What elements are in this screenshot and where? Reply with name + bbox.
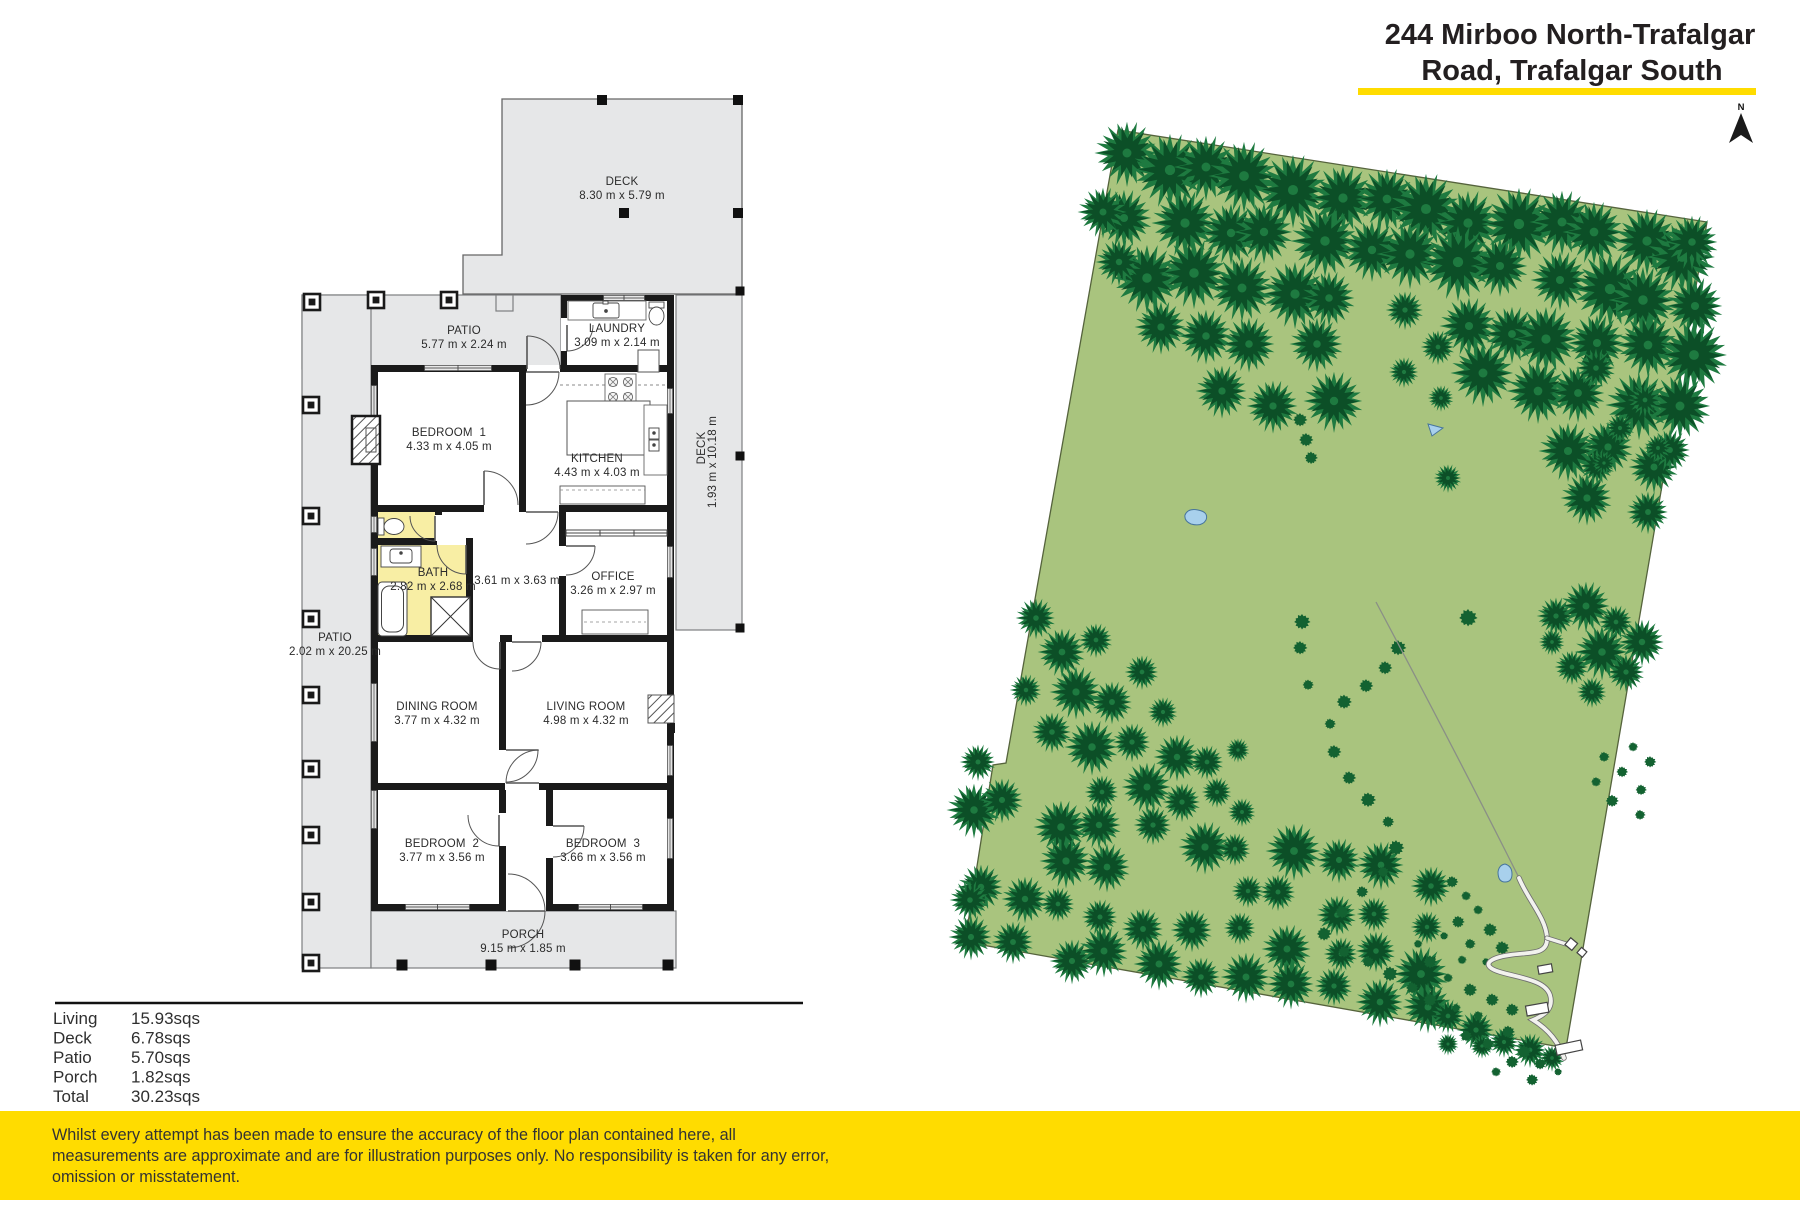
- svg-text:1.93 m x 10.18 m: 1.93 m x 10.18 m: [707, 416, 719, 508]
- svg-text:measurements are approximate a: measurements are approximate and are for…: [52, 1147, 829, 1165]
- svg-text:Deck: Deck: [53, 1029, 92, 1048]
- svg-text:3.09 m x 2.14 m: 3.09 m x 2.14 m: [574, 337, 659, 349]
- svg-text:1.82sqs: 1.82sqs: [131, 1068, 191, 1087]
- svg-text:DINING ROOM: DINING ROOM: [396, 701, 477, 713]
- svg-text:8.30 m x 5.79 m: 8.30 m x 5.79 m: [579, 190, 664, 202]
- svg-text:4.33 m x 4.05 m: 4.33 m x 4.05 m: [406, 441, 491, 453]
- svg-text:3.61 m x 3.63 m: 3.61 m x 3.63 m: [474, 575, 559, 587]
- svg-text:LIVING ROOM: LIVING ROOM: [547, 701, 626, 713]
- svg-text:PATIO: PATIO: [318, 632, 352, 644]
- svg-text:Total: Total: [53, 1087, 89, 1106]
- svg-text:Patio: Patio: [53, 1048, 92, 1067]
- svg-text:4.43 m x 4.03 m: 4.43 m x 4.03 m: [554, 467, 639, 479]
- svg-text:5.77 m x 2.24 m: 5.77 m x 2.24 m: [421, 339, 506, 351]
- svg-text:BEDROOM 1: BEDROOM 1: [412, 427, 486, 439]
- svg-text:30.23sqs: 30.23sqs: [131, 1087, 200, 1106]
- svg-text:Porch: Porch: [53, 1068, 97, 1087]
- svg-text:6.78sqs: 6.78sqs: [131, 1029, 191, 1048]
- svg-text:244 Mirboo North-Trafalgar: 244 Mirboo North-Trafalgar: [1385, 19, 1756, 51]
- svg-text:LAUNDRY: LAUNDRY: [589, 323, 645, 335]
- svg-text:4.98 m x 4.32 m: 4.98 m x 4.32 m: [543, 715, 628, 727]
- svg-text:15.93sqs: 15.93sqs: [131, 1009, 200, 1028]
- svg-text:Whilst every attempt has been: Whilst every attempt has been made to en…: [52, 1126, 736, 1144]
- svg-text:3.77 m x 3.56 m: 3.77 m x 3.56 m: [399, 852, 484, 864]
- svg-text:5.70sqs: 5.70sqs: [131, 1048, 191, 1067]
- svg-text:BATH: BATH: [418, 567, 449, 579]
- svg-text:OFFICE: OFFICE: [591, 571, 634, 583]
- svg-text:N: N: [1738, 102, 1745, 113]
- svg-text:2.02 m x 20.25 m: 2.02 m x 20.25 m: [289, 646, 381, 658]
- svg-text:PORCH: PORCH: [502, 929, 545, 941]
- svg-text:PATIO: PATIO: [447, 325, 481, 337]
- svg-text:BEDROOM 3: BEDROOM 3: [566, 838, 640, 850]
- svg-text:3.66 m x 3.56 m: 3.66 m x 3.56 m: [560, 852, 645, 864]
- svg-text:omission or misstatement.: omission or misstatement.: [52, 1168, 240, 1186]
- svg-text:2.82 m x 2.68 m: 2.82 m x 2.68 m: [390, 581, 475, 593]
- svg-text:Road, Trafalgar South: Road, Trafalgar South: [1421, 55, 1722, 87]
- svg-text:9.15 m x 1.85 m: 9.15 m x 1.85 m: [480, 943, 565, 955]
- svg-text:KITCHEN: KITCHEN: [571, 453, 623, 465]
- svg-text:3.26 m x 2.97 m: 3.26 m x 2.97 m: [570, 585, 655, 597]
- svg-text:3.77 m x 4.32 m: 3.77 m x 4.32 m: [394, 715, 479, 727]
- svg-text:Living: Living: [53, 1009, 97, 1028]
- svg-text:BEDROOM 2: BEDROOM 2: [405, 838, 479, 850]
- svg-text:DECK: DECK: [606, 176, 639, 188]
